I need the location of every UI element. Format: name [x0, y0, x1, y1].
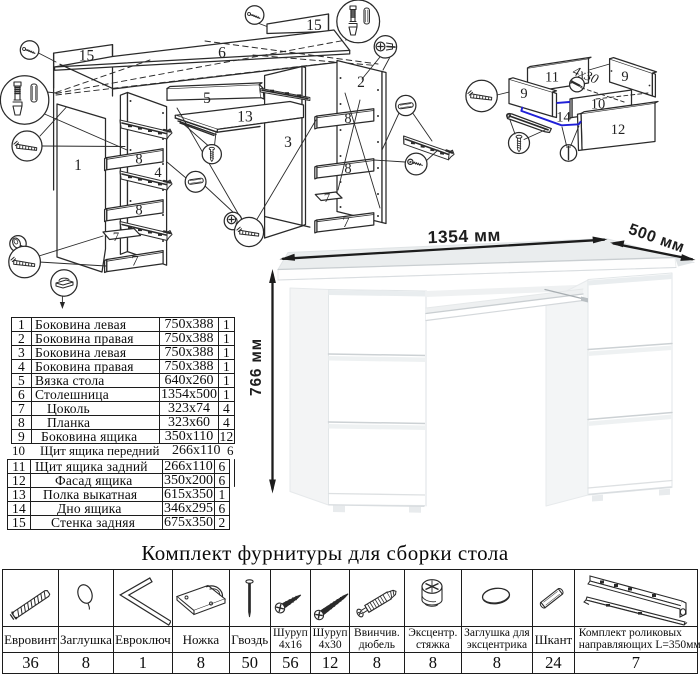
svg-text:8: 8	[135, 152, 142, 168]
svg-text:11: 11	[545, 70, 559, 86]
svg-text:13: 13	[237, 109, 253, 126]
svg-text:7: 7	[131, 254, 138, 270]
svg-text:7: 7	[113, 230, 119, 244]
svg-text:1354 мм: 1354 мм	[427, 225, 501, 248]
svg-text:3: 3	[284, 134, 292, 151]
svg-text:8: 8	[135, 203, 142, 219]
svg-text:12: 12	[611, 122, 626, 138]
svg-text:8: 8	[344, 111, 351, 127]
svg-text:4: 4	[154, 165, 162, 181]
svg-text:1: 1	[74, 157, 82, 174]
svg-text:5: 5	[203, 90, 211, 107]
svg-text:7: 7	[324, 191, 330, 205]
svg-text:6: 6	[218, 45, 226, 62]
svg-text:9: 9	[520, 86, 527, 102]
svg-text:766 мм: 766 мм	[248, 338, 265, 396]
svg-text:8: 8	[344, 161, 351, 177]
svg-text:9: 9	[621, 69, 628, 85]
svg-text:14: 14	[556, 110, 571, 126]
svg-text:7: 7	[342, 215, 349, 231]
